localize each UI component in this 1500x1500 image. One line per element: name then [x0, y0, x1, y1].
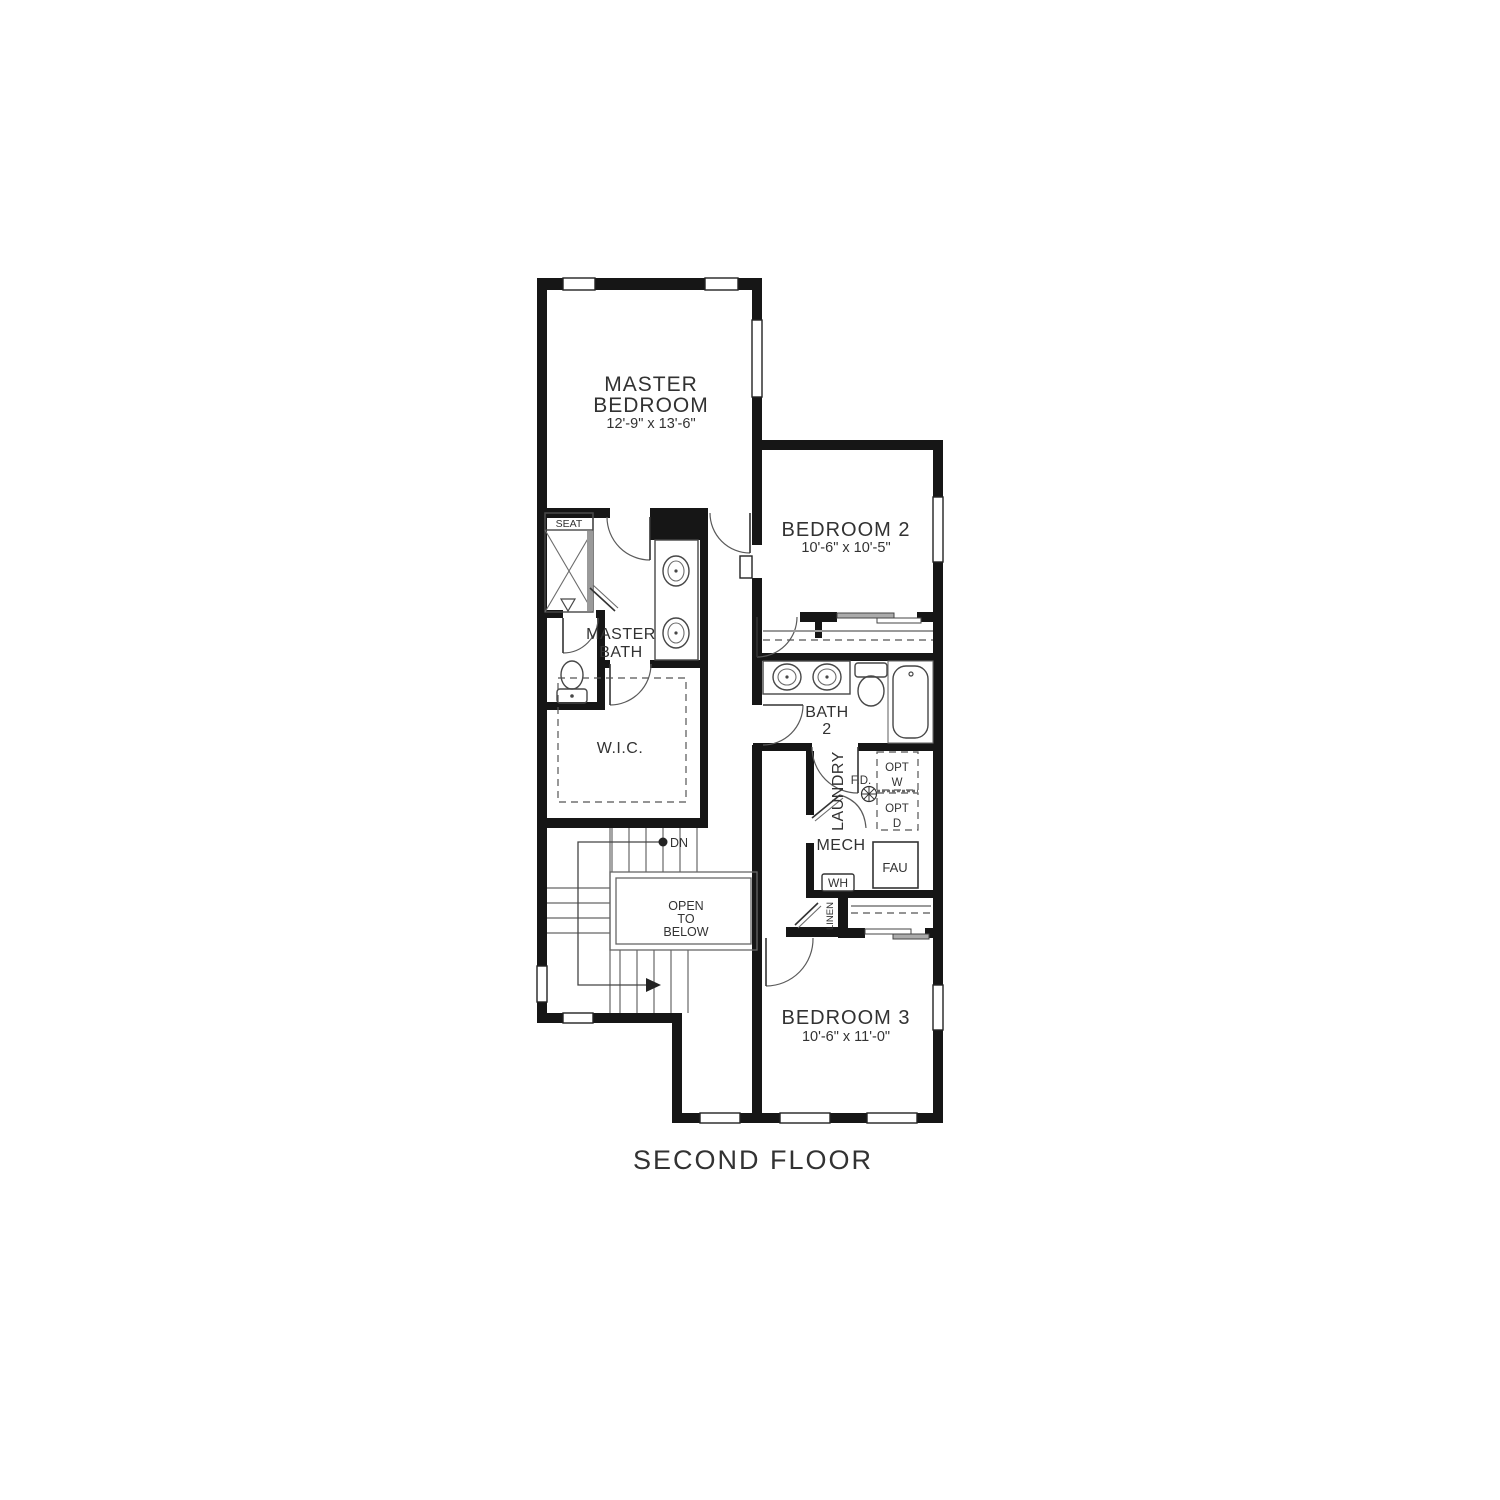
fixture-labels: SEAT FAU WH F.D. OPT W OPT D DN: [556, 518, 909, 890]
opt-washer-label2: W: [892, 777, 903, 789]
open-below-label2: TO: [677, 912, 694, 926]
bath2-label2: 2: [822, 721, 831, 738]
wic-label: W.I.C.: [597, 740, 644, 757]
bypass-door: [877, 618, 921, 623]
open-below-label: OPEN: [668, 899, 703, 913]
bypass-door: [837, 613, 894, 618]
master-bath-label2: BATH: [599, 644, 642, 661]
fd-label: F.D.: [851, 775, 871, 787]
bedroom2-closet: [763, 613, 933, 640]
floor-plan-svg: MASTER BEDROOM 12'-9" x 13'-6" BEDROOM 2…: [0, 0, 1500, 1500]
master-bedroom-label: MASTER: [604, 373, 698, 396]
vanity-master: [655, 540, 698, 660]
shower-glass: [587, 531, 593, 611]
floor-title: SECOND FLOOR: [633, 1145, 873, 1175]
open-below-label3: BELOW: [663, 925, 708, 939]
master-bath-label: MASTER: [586, 626, 656, 643]
bathtub: [888, 661, 933, 743]
bedroom2-door-leaf: [740, 556, 752, 578]
bedroom3-dims: 10'-6" x 11'-0": [802, 1029, 890, 1045]
vanity-bath2: [763, 661, 850, 694]
floor-drain-symbol: [862, 787, 877, 802]
wh-label: WH: [828, 876, 848, 890]
opt-washer-label: OPT: [885, 762, 909, 774]
bedroom2-label: BEDROOM 2: [781, 519, 910, 541]
master-bedroom-dims: 12'-9" x 13'-6": [606, 416, 695, 432]
master-bedroom-label2: BEDROOM: [593, 394, 709, 417]
floor-plan-canvas: MASTER BEDROOM 12'-9" x 13'-6" BEDROOM 2…: [0, 0, 1500, 1500]
bath2-label: BATH: [805, 704, 848, 721]
dn-label: DN: [670, 836, 688, 850]
mech-label: MECH: [816, 837, 865, 854]
bypass-door: [865, 929, 911, 934]
toilet-bath2: [855, 663, 887, 706]
stairs: [547, 828, 697, 1013]
shower-drain: [561, 599, 575, 611]
bypass-door: [893, 934, 929, 939]
fau-label: FAU: [882, 860, 907, 875]
linen-label: LINEN: [825, 902, 836, 930]
opt-dryer-label2: D: [893, 818, 901, 830]
laundry-label: LAUNDRY: [830, 751, 847, 831]
bedroom3-label: BEDROOM 3: [781, 1007, 910, 1029]
toilet-master: [557, 661, 587, 703]
seat-label: SEAT: [556, 518, 583, 530]
stair-down-marker: [659, 838, 668, 847]
opt-dryer-label: OPT: [885, 803, 909, 815]
bedroom2-dims: 10'-6" x 10'-5": [801, 540, 890, 556]
